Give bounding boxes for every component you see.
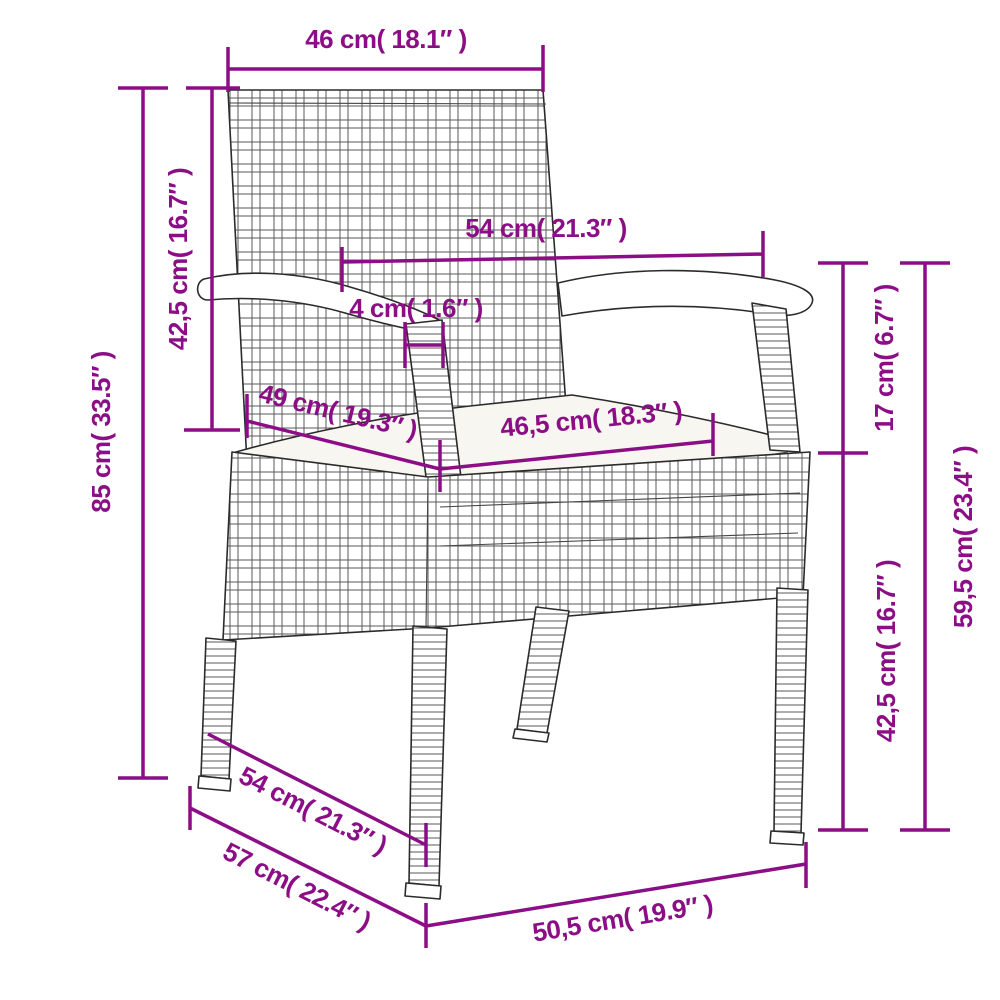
dim-base-front-width-label: 50,5 cm( 19.9″ )	[530, 889, 715, 948]
dim-back-width-label: 46 cm( 18.1″ )	[305, 24, 467, 54]
dim-armrest-height-label: 59,5 cm( 23.4″ )	[948, 446, 978, 628]
dim-backrest-height: 42,5 cm( 16.7″ )	[163, 88, 240, 430]
chair-leg-back-right	[513, 607, 569, 742]
dim-total-height-label: 85 cm( 33.5″ )	[86, 351, 116, 513]
dim-total-height: 85 cm( 33.5″ )	[86, 88, 168, 778]
dim-seat-to-armrest: 17 cm( 6.7″ ) 42,5 cm( 16.7″ )	[818, 263, 901, 830]
chair-base	[223, 452, 810, 640]
dim-total-depth-label: 57 cm( 22.4″ )	[218, 836, 376, 936]
dim-armrest-span-label: 54 cm( 21.3″ )	[465, 213, 627, 243]
dim-seat-to-armrest-label: 17 cm( 6.7″ )	[869, 284, 899, 432]
dim-armrest-height: 59,5 cm( 23.4″ )	[900, 263, 978, 830]
chair-armrest-support-right	[752, 303, 800, 452]
dim-seat-height-label: 42,5 cm( 16.7″ )	[871, 560, 901, 742]
dim-backrest-height-label: 42,5 cm( 16.7″ )	[163, 168, 193, 350]
diagram-canvas: 46 cm( 18.1″ ) 42,5 cm( 16.7″ ) 85 cm( 3…	[0, 0, 1000, 1000]
dim-armrest-width-label: 4 cm( 1.6″ )	[349, 293, 483, 323]
dim-back-width: 46 cm( 18.1″ )	[228, 24, 543, 92]
dim-base-front-width: 50,5 cm( 19.9″ )	[426, 842, 806, 948]
chair-leg-back-left	[198, 638, 236, 791]
chair-leg-front-right	[770, 588, 808, 845]
chair-illustration	[198, 90, 813, 899]
dim-depth-top-label: 54 cm( 21.3″ )	[234, 760, 392, 860]
